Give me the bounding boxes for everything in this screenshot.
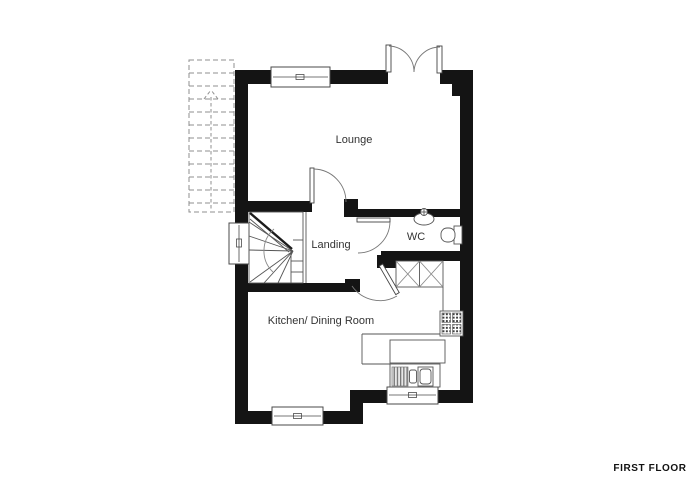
wall-segment — [363, 390, 387, 403]
wall-segment — [235, 264, 248, 424]
floor-plan-page: Lounge Landing WC Kitchen/ Dining Room F… — [0, 0, 700, 500]
wall-segment — [248, 283, 352, 292]
floor-title: FIRST FLOOR — [613, 463, 686, 474]
stairs-icon — [249, 212, 306, 283]
hob-icon — [440, 311, 463, 336]
window-icon — [387, 387, 438, 404]
landing-label: Landing — [311, 239, 350, 251]
lounge-door-icon — [310, 168, 346, 203]
kitchen-label: Kitchen/ Dining Room — [268, 315, 374, 327]
wall-segment — [323, 411, 350, 424]
wall-segment — [350, 390, 363, 424]
toilet-icon — [441, 226, 462, 244]
wc-label: WC — [407, 231, 425, 243]
wc-door-icon — [357, 218, 390, 253]
wall-segment — [438, 390, 463, 403]
wall-segment — [235, 70, 248, 223]
wall-segment — [440, 70, 473, 84]
external-stairs-icon — [189, 60, 234, 212]
window-icon — [272, 407, 323, 425]
floor-plan-drawing: Lounge Landing WC Kitchen/ Dining Room F… — [0, 0, 700, 500]
sink-icon — [390, 364, 440, 387]
wall-segment — [248, 201, 312, 212]
worktop — [390, 340, 445, 363]
lounge-label: Lounge — [336, 134, 373, 146]
window-icon — [271, 67, 330, 87]
storage-units-icon — [396, 261, 443, 287]
wall-segment — [345, 279, 360, 292]
wall-segment — [355, 209, 460, 217]
wall-segment — [330, 70, 388, 84]
french-doors-icon — [386, 45, 442, 73]
window-icon — [229, 223, 249, 264]
